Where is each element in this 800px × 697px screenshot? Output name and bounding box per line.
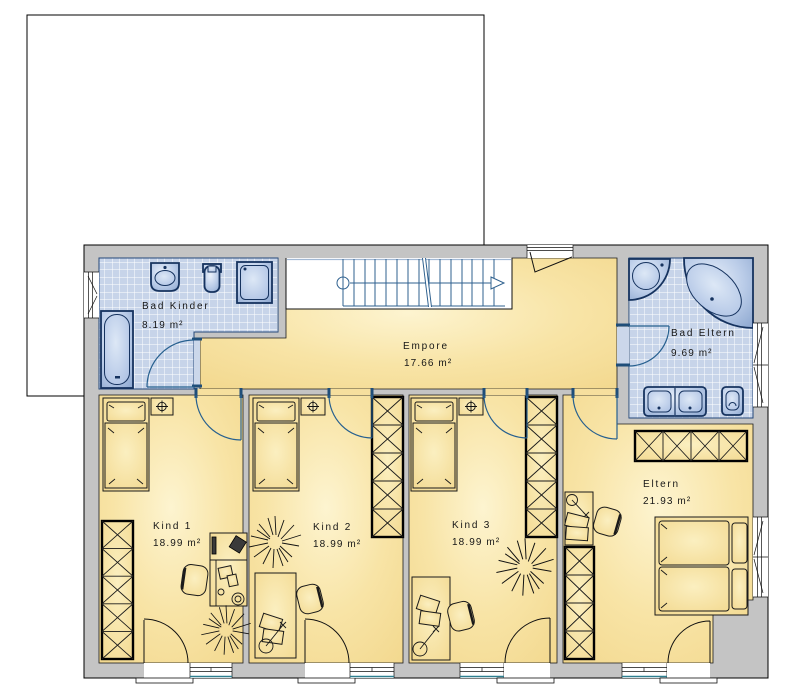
window-kind3 — [460, 663, 504, 678]
wardrobe-row — [635, 431, 747, 461]
wardrobe — [372, 397, 403, 537]
window-right-eltern — [753, 517, 768, 597]
double-washbasin — [644, 387, 706, 416]
shower — [237, 262, 272, 303]
desk — [565, 492, 593, 545]
wardrobe — [526, 397, 557, 537]
floor-plan-page: Bad Kinder 8.19 m² Empore 17.66 m² Bad E… — [0, 0, 800, 697]
room-area-kind1: 18.99 m² — [153, 538, 201, 549]
room-area-bad-eltern: 9.69 m² — [671, 348, 713, 359]
desk — [210, 533, 247, 606]
window-kind2 — [350, 663, 394, 678]
room-area-empore: 17.66 m² — [404, 358, 452, 369]
desk — [255, 573, 296, 658]
single-bed — [253, 398, 299, 491]
chair — [180, 563, 209, 596]
window-left — [84, 272, 99, 318]
room-area-bad-kinder: 8.19 m² — [142, 320, 184, 331]
bathtub — [101, 311, 133, 388]
single-bed — [103, 398, 149, 491]
room-label-empore: Empore — [403, 341, 449, 352]
window-eltern — [622, 663, 667, 678]
room-area-eltern: 21.93 m² — [643, 496, 691, 507]
desk — [412, 577, 450, 660]
wardrobe — [102, 521, 133, 659]
toilet — [203, 264, 221, 292]
nightstand — [301, 398, 325, 415]
wardrobe-column — [565, 547, 594, 659]
double-bed — [655, 517, 748, 615]
room-label-bad-eltern: Bad Eltern — [671, 328, 736, 339]
window-right-bad-eltern — [753, 323, 768, 407]
room-label-eltern: Eltern — [643, 479, 680, 490]
room-area-kind2: 18.99 m² — [313, 539, 361, 550]
single-bed — [411, 398, 457, 491]
floor-plan-drawing: Bad Kinder 8.19 m² Empore 17.66 m² Bad E… — [0, 0, 800, 697]
room-label-kind2: Kind 2 — [313, 522, 352, 533]
room-label-kind3: Kind 3 — [452, 520, 491, 531]
room-area-kind3: 18.99 m² — [452, 537, 500, 548]
room-label-kind1: Kind 1 — [153, 521, 192, 532]
nightstand — [459, 398, 483, 415]
nightstand — [151, 398, 173, 415]
window-kind1 — [190, 663, 232, 678]
stairwell — [286, 258, 512, 309]
room-label-bad-kinder: Bad Kinder — [142, 301, 209, 312]
toilet — [722, 387, 743, 415]
